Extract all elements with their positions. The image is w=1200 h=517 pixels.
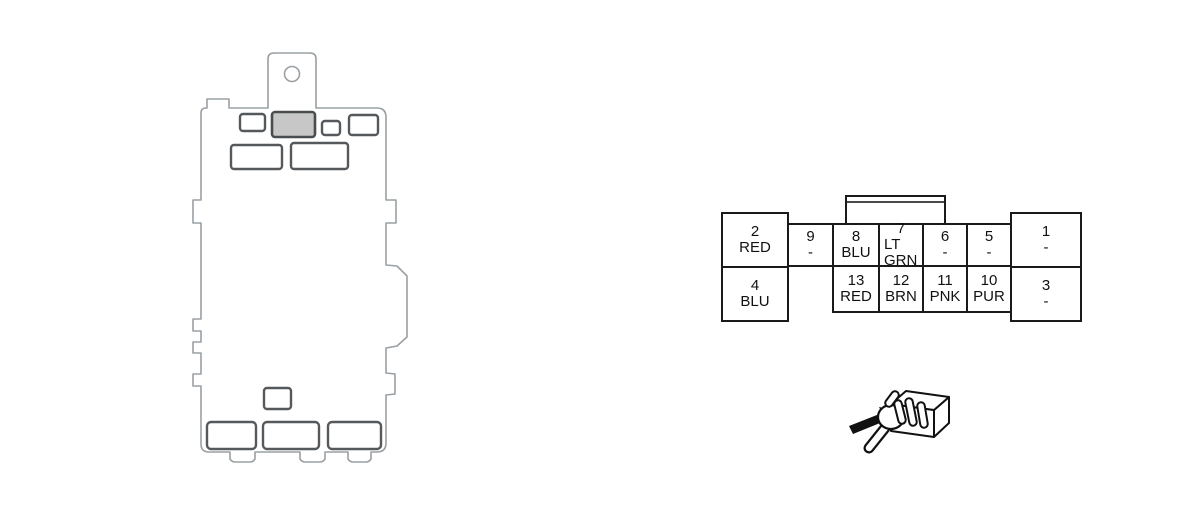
slot [328,422,381,449]
hand-grip-icon [849,391,949,448]
slot [264,388,291,409]
slot-highlighted [272,112,315,137]
slot [291,143,348,169]
diagram-canvas: 2 RED 4 BLU 9 - 8 BLU 7 LT GRN 6 - [0,0,1200,517]
fuse-box-drawing [193,53,407,462]
slot [207,422,256,449]
line-art-layer [0,0,1200,517]
slot [263,422,319,449]
slot [240,114,265,131]
slot [231,145,282,169]
mounting-hole-icon [285,67,300,82]
slot [322,121,340,135]
slot [349,115,378,135]
